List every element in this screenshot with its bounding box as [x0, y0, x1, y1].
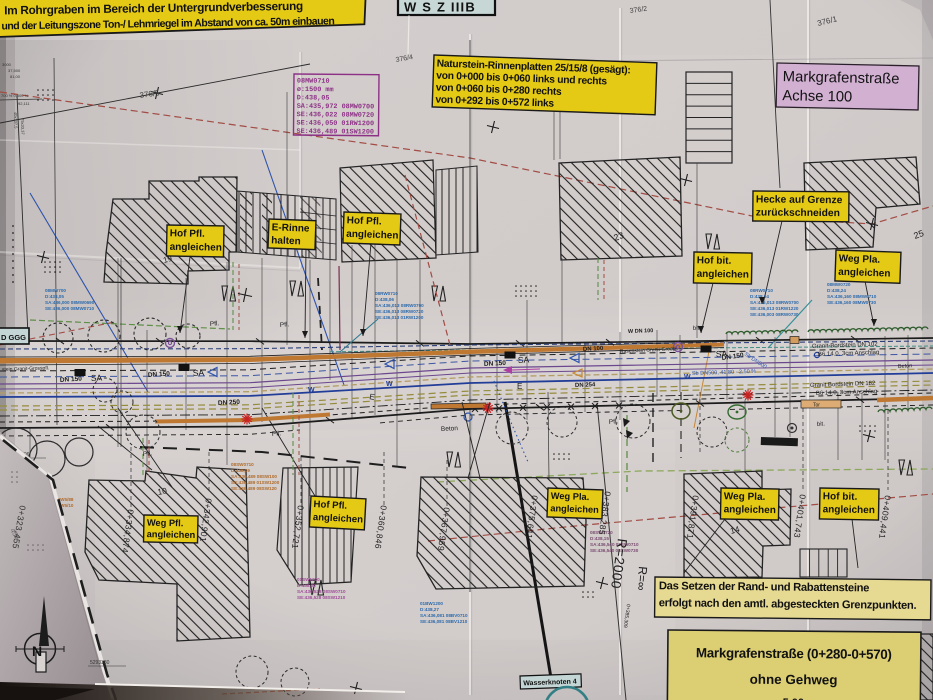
svg-text:D:438,09: D:438,09 [231, 468, 250, 473]
svg-text:W DN 100: W DN 100 [628, 328, 654, 335]
svg-text:SE:436,489 01SW1200: SE:436,489 01SW1200 [296, 128, 374, 137]
svg-text:SE:436,160 08MW0730: SE:436,160 08MW0730 [827, 300, 876, 305]
svg-text:ohne Gehweg: ohne Gehweg [750, 672, 838, 688]
svg-text:08RW0710: 08RW0710 [375, 291, 398, 296]
svg-text:halten: halten [271, 235, 301, 247]
svg-text:Weg Pla.: Weg Pla. [724, 491, 766, 503]
svg-text:700 % 0,300 %: 700 % 0,300 % [1, 93, 29, 98]
svg-text:D:438,24: D:438,24 [827, 288, 846, 293]
svg-text:zurückschneiden: zurückschneiden [756, 207, 840, 219]
svg-text:Beton: Beton [898, 363, 913, 370]
svg-text:DN 100: DN 100 [583, 346, 604, 353]
svg-text:DN 250: DN 250 [218, 399, 241, 407]
svg-text:08MW0720: 08MW0720 [827, 282, 851, 287]
svg-text:Achse 100: Achse 100 [782, 88, 852, 105]
svg-text:angleichen: angleichen [697, 269, 749, 281]
svg-text:R=∞: R=∞ [634, 566, 650, 591]
svg-text:Markgrafenstraße (0+280-0+570): Markgrafenstraße (0+280-0+570) [696, 645, 892, 662]
svg-text:Tor: Tor [813, 403, 820, 409]
svg-text:D:438,15: D:438,15 [590, 536, 609, 541]
svg-text:D:438,22: D:438,22 [297, 583, 316, 588]
svg-text:bit.: bit. [817, 421, 826, 428]
svg-text:W: W [684, 374, 691, 381]
svg-text:3000: 3000 [2, 62, 12, 67]
svg-text:Hof Pfl.: Hof Pfl. [170, 228, 205, 240]
svg-text:SA:436,160 08MW0710: SA:436,160 08MW0710 [827, 294, 877, 299]
svg-text:DN 150: DN 150 [484, 360, 507, 368]
svg-text:angleichen: angleichen [170, 242, 222, 254]
svg-text:SE:436,022 08MW0720: SE:436,022 08MW0720 [297, 111, 375, 120]
svg-text:SA:436,000 08MW0690: SA:436,000 08MW0690 [45, 300, 95, 305]
svg-text:10: 10 [157, 485, 168, 497]
svg-text:SE:436,013 01RW1220: SE:436,013 01RW1220 [750, 306, 799, 311]
svg-text:01SW1200: 01SW1200 [297, 577, 320, 582]
svg-text:Pfl.: Pfl. [210, 320, 220, 328]
svg-text:angleichen: angleichen [838, 267, 891, 280]
svg-text:SE:436,003 08RW0730: SE:436,003 08RW0730 [750, 312, 799, 317]
svg-text:ø:1500 mm: ø:1500 mm [297, 86, 334, 94]
svg-text:SA: SA [91, 372, 103, 383]
svg-text:Weg Pfl.: Weg Pfl. [147, 518, 184, 529]
svg-text:Weg Pla.: Weg Pla. [551, 491, 590, 502]
svg-text:E: E [517, 382, 522, 391]
svg-text:Hof bit.: Hof bit. [823, 491, 858, 503]
svg-text:D:438,06: D:438,06 [375, 297, 394, 302]
svg-text:SA:436,013 08RW0700: SA:436,013 08RW0700 [750, 300, 799, 305]
svg-text:D:438,05: D:438,05 [297, 94, 330, 102]
svg-text:W S Z IIIB: W S Z IIIB [404, 0, 476, 15]
svg-text:SA:436,081 08BV0710: SA:436,081 08BV0710 [420, 613, 468, 618]
svg-text:Pfl.: Pfl. [280, 321, 290, 329]
svg-text:D:438,05: D:438,05 [45, 294, 64, 299]
svg-text:SE:436,013 01RW1200: SE:436,013 01RW1200 [375, 315, 424, 320]
svg-text:92,111: 92,111 [18, 101, 30, 106]
svg-text:SA:436,528 08SW0710: SA:436,528 08SW0710 [297, 589, 346, 594]
svg-text:W: W [386, 381, 393, 388]
svg-text:SE:436,489 01SW1200: SE:436,489 01SW1200 [231, 480, 280, 485]
svg-text:DN 254: DN 254 [575, 382, 596, 389]
svg-text:W: W [308, 387, 315, 394]
svg-text:Das Setzen der Rand- und Rabat: Das Setzen der Rand- und Rabattensteine [659, 580, 869, 594]
svg-text:Hof bit.: Hof bit. [697, 255, 732, 267]
svg-text:angleichen: angleichen [147, 529, 196, 540]
svg-text:81,00: 81,00 [10, 74, 21, 79]
svg-text:Markgrafenstraße: Markgrafenstraße [783, 69, 900, 87]
svg-text:08SW0710: 08SW0710 [231, 462, 254, 467]
svg-text:D GGG: D GGG [1, 333, 26, 342]
svg-text:Hof Pfl.: Hof Pfl. [313, 499, 347, 512]
svg-text:Hecke auf Grenze: Hecke auf Grenze [756, 194, 843, 206]
svg-text:angleichen: angleichen [346, 229, 399, 242]
svg-text:T5x33,37: T5x33,37 [20, 118, 26, 136]
svg-text:5293380: 5293380 [90, 660, 110, 666]
svg-text:angleichen: angleichen [823, 504, 875, 516]
svg-text:SE:436,050 01RW1200: SE:436,050 01RW1200 [297, 120, 375, 129]
svg-text:08MW0710: 08MW0710 [297, 78, 330, 86]
svg-text:SA:435,972 08MW0700: SA:435,972 08MW0700 [297, 103, 375, 112]
svg-text:E-Rinne: E-Rinne [272, 222, 311, 234]
svg-text:angleichen: angleichen [550, 503, 599, 515]
svg-text:08MW700: 08MW700 [45, 288, 66, 293]
svg-text:40x137,5: 40x137,5 [13, 112, 19, 129]
svg-text:Beton: Beton [441, 425, 459, 433]
svg-text:SA:436,013 08RW0700: SA:436,013 08RW0700 [375, 303, 424, 308]
svg-text:SE:436,013 08RW0720: SE:436,013 08RW0720 [375, 309, 424, 314]
svg-text:37,500: 37,500 [8, 68, 21, 73]
svg-text:Weg Pla.: Weg Pla. [839, 253, 881, 265]
svg-text:Pfl.: Pfl. [272, 430, 282, 438]
svg-text:SE:436,081 08BV1210: SE:436,081 08BV1210 [420, 619, 468, 624]
svg-text:SE:436,000 08MW0710: SE:436,000 08MW0710 [45, 306, 94, 311]
svg-text:SA:436,489 08SW100: SA:436,489 08SW100 [231, 474, 277, 479]
svg-text:SE:436,528 08SW1210: SE:436,528 08SW1210 [297, 595, 346, 600]
svg-text:SE:436,489 08SW120: SE:436,489 08SW120 [231, 486, 277, 491]
svg-text:Pfl.: Pfl. [143, 450, 153, 458]
svg-text:Hof Pfl.: Hof Pfl. [347, 215, 383, 227]
svg-text:08RW0710: 08RW0710 [750, 288, 773, 293]
svg-text:N: N [32, 643, 42, 659]
svg-text:angleichen: angleichen [724, 504, 776, 516]
svg-text:Pfl.: Pfl. [609, 418, 619, 426]
svg-text:D:438,27: D:438,27 [420, 607, 439, 612]
svg-text:01BW1200: 01BW1200 [420, 601, 443, 606]
